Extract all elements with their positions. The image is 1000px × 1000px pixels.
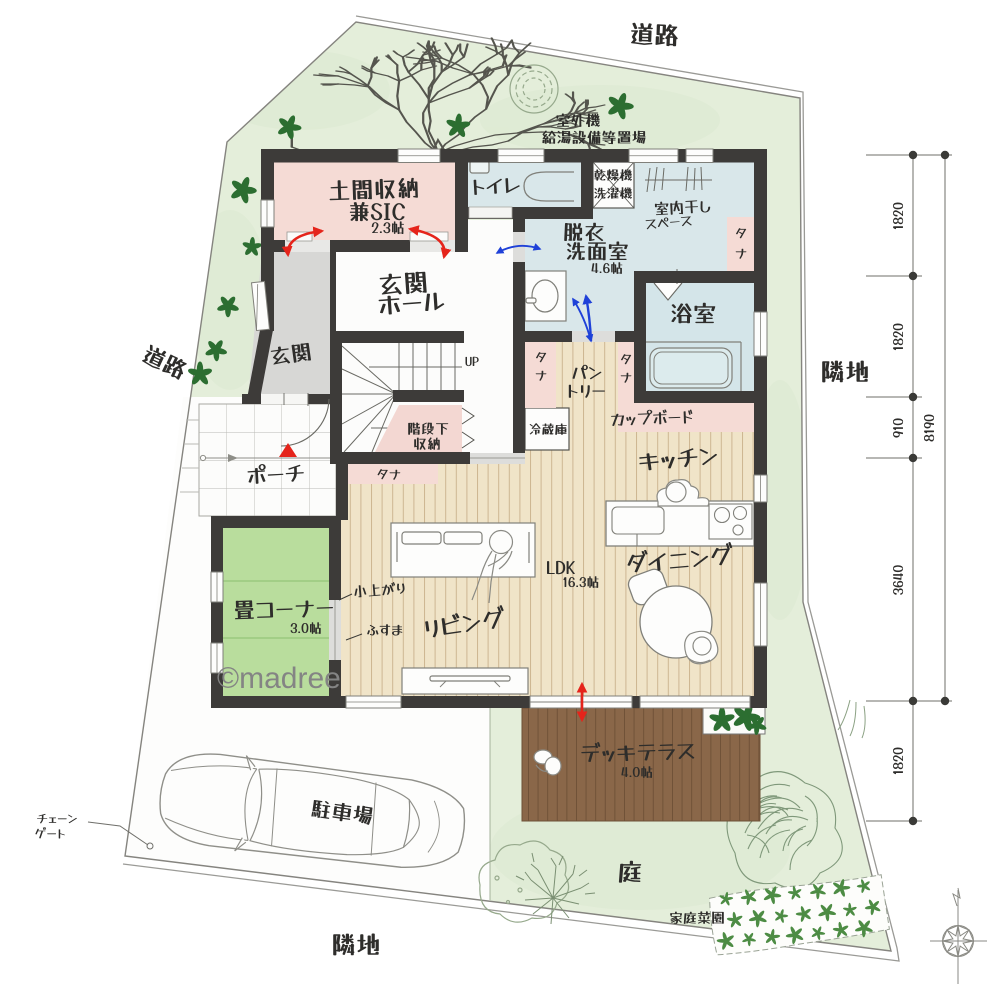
- svg-text:©madree: ©madree: [217, 662, 341, 695]
